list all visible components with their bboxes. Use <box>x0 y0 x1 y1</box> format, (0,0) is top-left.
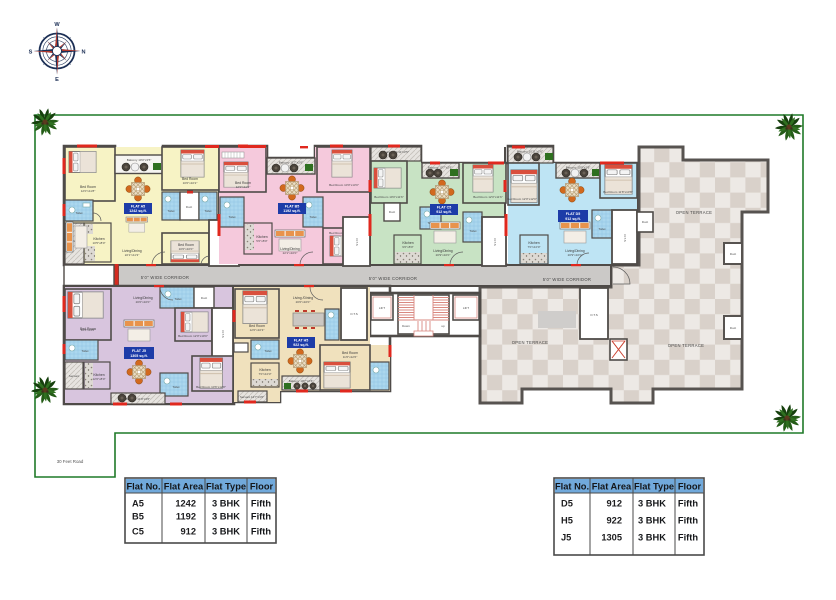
svg-text:H5: H5 <box>561 516 573 526</box>
svg-text:1305: 1305 <box>601 533 622 543</box>
svg-text:D5: D5 <box>561 499 573 509</box>
svg-text:B5: B5 <box>132 512 144 522</box>
svg-text:Balcony 10'0"x3'5": Balcony 10'0"x3'5" <box>127 158 152 162</box>
svg-text:Bed Room 11'8"x10'8": Bed Room 11'8"x10'8" <box>603 190 633 194</box>
svg-text:O.T.S: O.T.S <box>493 238 497 246</box>
svg-text:Balcony 10'11"x2'6": Balcony 10'11"x2'6" <box>517 150 543 154</box>
svg-text:10'0"x10'2": 10'0"x10'2" <box>183 181 198 185</box>
svg-text:Bed Room 12'0"x12'0": Bed Room 12'0"x12'0" <box>507 197 537 201</box>
svg-text:Down: Down <box>402 324 410 328</box>
svg-text:Balcony 10'9"x2'6": Balcony 10'9"x2'6" <box>566 166 591 170</box>
svg-text:N: N <box>81 49 85 55</box>
svg-text:22'1"x10'0": 22'1"x10'0" <box>283 251 298 255</box>
svg-text:Flat Type: Flat Type <box>634 482 674 492</box>
svg-text:FLAT D5: FLAT D5 <box>566 212 581 216</box>
svg-text:Floor: Floor <box>678 482 702 492</box>
svg-text:Toilet: Toilet <box>172 385 179 389</box>
svg-text:3 BHK: 3 BHK <box>212 527 240 537</box>
svg-text:5'0" WIDE CORRIDOR: 5'0" WIDE CORRIDOR <box>141 275 189 280</box>
svg-text:Fifth: Fifth <box>251 499 271 509</box>
svg-text:12'0"x11'8": 12'0"x11'8" <box>81 189 96 193</box>
svg-text:OPEN TERRACE: OPEN TERRACE <box>668 343 705 348</box>
svg-text:Fifth: Fifth <box>251 527 271 537</box>
svg-text:Toilet: Toilet <box>204 209 211 213</box>
svg-text:912 sq.ft.: 912 sq.ft. <box>565 217 581 221</box>
svg-text:up: up <box>441 324 445 328</box>
svg-text:10'0"x10'0": 10'0"x10'0" <box>179 247 194 251</box>
svg-text:Servant 12'7"x3'6": Servant 12'7"x3'6" <box>240 395 264 399</box>
svg-text:Duct: Duct <box>389 210 395 214</box>
svg-text:912: 912 <box>180 527 196 537</box>
svg-text:Toilet: Toilet <box>264 349 271 353</box>
svg-text:A5: A5 <box>132 499 144 509</box>
svg-text:1242 sq.ft.: 1242 sq.ft. <box>129 209 147 213</box>
svg-text:Toilet: Toilet <box>228 215 235 219</box>
svg-text:OPEN TERRACE: OPEN TERRACE <box>512 340 549 345</box>
svg-text:10'5"x8'0": 10'5"x8'0" <box>92 241 105 245</box>
svg-text:Bed Room 10'6"x12'8": Bed Room 10'6"x12'8" <box>196 385 226 389</box>
svg-text:30 Feet Road: 30 Feet Road <box>57 459 84 464</box>
svg-text:O.T.S: O.T.S <box>623 234 627 242</box>
svg-text:O.T.S: O.T.S <box>221 330 225 338</box>
svg-text:Toilet: Toilet <box>174 297 181 301</box>
svg-text:Duct: Duct <box>186 205 192 209</box>
svg-text:20'9"x10'0": 20'9"x10'0" <box>436 253 451 257</box>
svg-text:FLAT A5: FLAT A5 <box>131 205 145 209</box>
svg-text:20'0"x10'0": 20'0"x10'0" <box>136 300 151 304</box>
svg-text:12'0"x11'0": 12'0"x11'0" <box>236 185 251 189</box>
svg-text:W: W <box>54 22 60 28</box>
svg-text:Duct: Duct <box>201 296 207 300</box>
svg-text:12'0"x10'3": 12'0"x10'3" <box>250 328 265 332</box>
svg-text:Toilet: Toilet <box>469 229 476 233</box>
svg-text:912 sq.ft.: 912 sq.ft. <box>436 210 452 214</box>
svg-text:Servant: Servant <box>69 374 80 378</box>
svg-text:Toilet: Toilet <box>75 211 82 215</box>
svg-text:LIFT: LIFT <box>379 306 385 310</box>
svg-text:12'0"x11'6": 12'0"x11'6" <box>81 328 96 332</box>
svg-text:5'0"x8'0": 5'0"x8'0" <box>256 239 267 243</box>
svg-text:3 BHK: 3 BHK <box>212 499 240 509</box>
svg-text:E: E <box>55 77 59 83</box>
svg-text:20'0"x10'0": 20'0"x10'0" <box>296 300 311 304</box>
svg-text:922 sq.ft.: 922 sq.ft. <box>293 343 309 347</box>
svg-text:22'1"x11'3": 22'1"x11'3" <box>125 253 140 257</box>
svg-text:5'0" WIDE CORRIDOR: 5'0" WIDE CORRIDOR <box>543 277 591 282</box>
svg-text:Bed Room 12'0"x11'6": Bed Room 12'0"x11'6" <box>473 195 503 199</box>
svg-text:3 BHK: 3 BHK <box>212 512 240 522</box>
svg-text:J5: J5 <box>561 533 571 543</box>
svg-text:Bed Room 12'0"x10'0": Bed Room 12'0"x10'0" <box>178 334 208 338</box>
svg-text:9'0"x8'0": 9'0"x8'0" <box>402 245 413 249</box>
svg-text:OPEN TERRACE: OPEN TERRACE <box>676 210 713 215</box>
svg-text:Fifth: Fifth <box>678 533 698 543</box>
svg-text:FLAT J5: FLAT J5 <box>132 349 146 353</box>
svg-text:O.T.S: O.T.S <box>350 312 358 316</box>
svg-text:Duct: Duct <box>730 252 736 256</box>
svg-text:Duct: Duct <box>730 326 736 330</box>
svg-text:1192 sq.ft.: 1192 sq.ft. <box>283 209 300 213</box>
svg-text:922: 922 <box>606 516 622 526</box>
svg-text:Toilet: Toilet <box>81 349 88 353</box>
svg-text:C5: C5 <box>132 527 144 537</box>
svg-text:3 BHK: 3 BHK <box>638 516 666 526</box>
svg-text:12'0"x8'0": 12'0"x8'0" <box>92 377 105 381</box>
svg-text:Flat Type: Flat Type <box>206 482 246 492</box>
svg-text:1192: 1192 <box>176 512 196 522</box>
svg-text:FLAT H5: FLAT H5 <box>294 339 309 343</box>
svg-text:Bed Room 10'0"x11'6": Bed Room 10'0"x11'6" <box>374 195 404 199</box>
svg-text:3 BHK: 3 BHK <box>638 499 666 509</box>
svg-text:Duct: Duct <box>642 220 648 224</box>
svg-text:Balcony 10'7"x2'6": Balcony 10'7"x2'6" <box>289 379 314 383</box>
svg-text:3 BHK: 3 BHK <box>638 533 666 543</box>
svg-text:7'0"x10'0": 7'0"x10'0" <box>527 245 540 249</box>
svg-text:7'0"x10'3": 7'0"x10'3" <box>258 372 271 376</box>
svg-text:Balcony 10'7"x2'6": Balcony 10'7"x2'6" <box>428 166 453 170</box>
svg-text:Fifth: Fifth <box>678 516 698 526</box>
svg-text:S: S <box>29 49 33 55</box>
svg-text:Flat No.: Flat No. <box>555 482 589 492</box>
svg-text:5'0" WIDE CORRIDOR: 5'0" WIDE CORRIDOR <box>369 276 417 281</box>
svg-text:Balcony 11'7"x2'6": Balcony 11'7"x2'6" <box>279 161 303 165</box>
svg-text:O.T.S: O.T.S <box>590 313 598 317</box>
svg-text:FLAT B5: FLAT B5 <box>285 205 300 209</box>
svg-text:Fifth: Fifth <box>251 512 271 522</box>
svg-text:Toilet: Toilet <box>598 227 605 231</box>
svg-text:1305 sq.ft.: 1305 sq.ft. <box>130 354 148 358</box>
svg-text:LIFT: LIFT <box>463 306 469 310</box>
svg-text:Toilet: Toilet <box>167 209 174 213</box>
svg-text:O.T.S: O.T.S <box>355 238 359 246</box>
svg-text:Flat No.: Flat No. <box>126 482 160 492</box>
svg-text:Toilet: Toilet <box>309 215 316 219</box>
svg-text:11'6"x12'6": 11'6"x12'6" <box>343 355 358 359</box>
svg-text:Fifth: Fifth <box>678 499 698 509</box>
svg-text:Floor: Floor <box>250 482 274 492</box>
svg-text:Bed Room 10'0"x13'0": Bed Room 10'0"x13'0" <box>329 183 359 187</box>
svg-text:FLAT C5: FLAT C5 <box>437 206 452 210</box>
svg-text:Flat Area: Flat Area <box>164 482 204 492</box>
svg-text:912: 912 <box>606 499 622 509</box>
svg-text:Flat Area: Flat Area <box>592 482 632 492</box>
svg-text:1242: 1242 <box>175 499 196 509</box>
